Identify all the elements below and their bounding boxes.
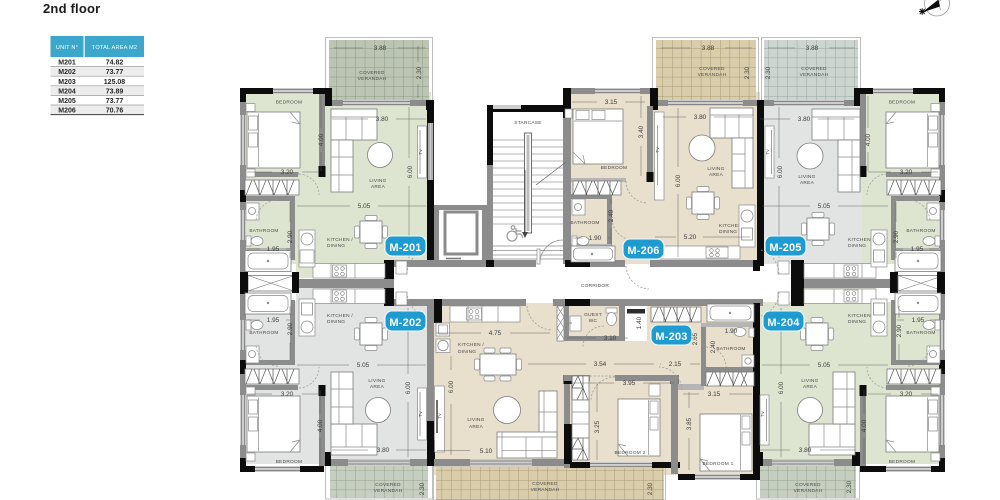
svg-text:Tv: Tv [418,149,424,155]
svg-text:3.80: 3.80 [798,116,811,123]
svg-text:3.15: 3.15 [605,99,618,106]
svg-text:AREA: AREA [709,172,724,178]
svg-text:1.40: 1.40 [636,316,643,329]
svg-text:BATHROOM: BATHROOM [249,228,278,234]
svg-text:3.20: 3.20 [281,391,294,398]
svg-text:M-202: M-202 [389,317,421,329]
svg-text:5.05: 5.05 [358,203,371,210]
svg-text:KITCHEN /: KITCHEN / [848,313,874,319]
svg-text:BEDROOM: BEDROOM [601,165,628,171]
svg-text:5.05: 5.05 [818,203,831,210]
svg-text:BEDROOM: BEDROOM [889,100,916,106]
svg-text:LIVING: LIVING [369,178,386,184]
svg-text:74.82: 74.82 [106,60,124,67]
svg-text:3.25: 3.25 [594,420,601,433]
svg-text:2.30: 2.30 [846,480,853,493]
svg-text:VERANDAH: VERANDAH [794,488,823,494]
svg-text:BEDROOM: BEDROOM [276,100,303,106]
svg-text:LIVING: LIVING [707,166,724,172]
svg-text:125.08: 125.08 [104,79,126,86]
svg-text:3.95: 3.95 [623,380,636,387]
svg-text:BEDROOM 1: BEDROOM 1 [702,461,733,467]
svg-text:M205: M205 [58,98,76,105]
svg-text:M201: M201 [58,60,76,67]
svg-text:3.10: 3.10 [604,335,617,342]
svg-text:DINING: DINING [458,349,476,355]
svg-text:BATHROOM: BATHROOM [249,330,278,336]
svg-text:VERANDAH: VERANDAH [374,488,403,494]
svg-text:M202: M202 [58,69,76,76]
svg-text:AREA: AREA [800,180,815,186]
svg-text:2.90: 2.90 [896,324,903,337]
svg-text:Tv: Tv [437,413,443,419]
svg-text:M204: M204 [58,88,76,95]
svg-text:LIVING: LIVING [467,417,484,423]
svg-text:3.80: 3.80 [694,114,707,121]
svg-text:73.77: 73.77 [106,98,124,105]
svg-text:TOTAL AREA M2: TOTAL AREA M2 [92,45,137,51]
svg-text:6.00: 6.00 [448,380,455,393]
svg-text:VERANDAH: VERANDAH [358,76,387,82]
svg-text:3.54: 3.54 [594,361,607,368]
svg-text:3.88: 3.88 [806,45,819,52]
svg-text:5.05: 5.05 [818,362,831,369]
svg-text:GUEST: GUEST [584,312,602,318]
svg-text:DINING: DINING [848,243,866,249]
svg-text:6.00: 6.00 [405,381,412,394]
svg-text:1.95: 1.95 [911,246,924,253]
svg-text:1.95: 1.95 [267,246,280,253]
svg-text:KITCHEN /: KITCHEN / [458,342,484,348]
svg-text:M-203: M-203 [655,331,687,343]
svg-text:3.15: 3.15 [708,391,721,398]
svg-text:AREA: AREA [803,384,818,390]
svg-text:5.05: 5.05 [357,362,370,369]
svg-text:DINING: DINING [327,319,345,325]
svg-text:73.89: 73.89 [106,88,124,95]
svg-text:DINING: DINING [719,229,737,235]
svg-text:LIVING: LIVING [798,174,815,180]
svg-text:4.00: 4.00 [318,133,325,146]
svg-text:BATHROOM: BATHROOM [570,220,599,226]
svg-text:M-205: M-205 [769,242,801,254]
svg-text:UNIT N°: UNIT N° [56,45,78,51]
svg-text:COVERED: COVERED [699,66,725,72]
svg-text:BEDROOM: BEDROOM [889,459,916,465]
svg-text:4.00: 4.00 [861,419,868,432]
svg-text:BEDROOM: BEDROOM [276,459,303,465]
svg-text:BATHROOM: BATHROOM [906,330,935,336]
svg-text:2.90: 2.90 [287,230,294,243]
svg-text:73.77: 73.77 [106,69,124,76]
svg-text:3.85: 3.85 [686,417,693,430]
svg-text:4.75: 4.75 [489,330,502,337]
svg-text:BATHROOM: BATHROOM [906,228,935,234]
svg-text:3.40: 3.40 [638,125,645,138]
svg-text:6.00: 6.00 [407,165,414,178]
svg-text:KITCHEN /: KITCHEN / [848,237,874,243]
svg-text:1.90: 1.90 [589,235,602,242]
svg-text:3.20: 3.20 [900,391,913,398]
svg-text:KITCHEN /: KITCHEN / [327,313,353,319]
svg-text:3.80: 3.80 [799,447,812,454]
svg-text:M203: M203 [58,79,76,86]
svg-text:COVERED: COVERED [359,70,385,76]
svg-text:VERANDAH: VERANDAH [800,72,829,78]
svg-text:1.90: 1.90 [725,328,738,335]
svg-text:5.10: 5.10 [480,448,493,455]
svg-text:2.30: 2.30 [419,482,426,495]
svg-text:5.20: 5.20 [684,234,697,241]
svg-text:DINING: DINING [327,243,345,249]
svg-text:2.90: 2.90 [287,322,294,335]
svg-text:M206: M206 [58,108,76,115]
svg-text:VERANDAH: VERANDAH [531,487,560,493]
svg-text:WC: WC [589,318,598,324]
svg-text:AREA: AREA [370,384,385,390]
svg-text:STARCASE: STARCASE [514,120,542,126]
svg-text:KITCHEN /: KITCHEN / [327,237,353,243]
svg-text:4.00: 4.00 [865,133,872,146]
svg-text:3.20: 3.20 [900,169,913,176]
svg-text:3.80: 3.80 [377,447,390,454]
svg-text:Tv: Tv [765,149,771,155]
svg-text:6.00: 6.00 [777,165,784,178]
svg-text:6.00: 6.00 [675,174,682,187]
svg-text:COVERED: COVERED [375,482,401,488]
svg-text:70.76: 70.76 [106,108,124,115]
svg-text:3.88: 3.88 [702,45,715,52]
svg-text:1.95: 1.95 [912,317,925,324]
svg-text:M-201: M-201 [389,242,421,254]
svg-text:3.80: 3.80 [376,116,389,123]
svg-text:1.95: 1.95 [267,317,280,324]
svg-text:COVERED: COVERED [801,66,827,72]
svg-text:M-206: M-206 [627,245,659,257]
svg-text:2.30: 2.30 [744,66,751,79]
svg-text:2.90: 2.90 [893,230,900,243]
svg-text:2.30: 2.30 [647,482,654,495]
svg-text:M-204: M-204 [767,317,800,329]
svg-text:6.00: 6.00 [778,381,785,394]
svg-text:LIVING: LIVING [368,378,385,384]
svg-text:DINING: DINING [848,319,866,325]
svg-text:2.30: 2.30 [416,66,423,79]
svg-text:4.00: 4.00 [317,419,324,432]
svg-text:2.15: 2.15 [669,361,682,368]
svg-text:CORRIDOR: CORRIDOR [581,283,609,289]
svg-text:COVERED: COVERED [795,482,821,488]
svg-text:2.65: 2.65 [692,332,699,345]
svg-text:2.30: 2.30 [765,66,772,79]
svg-text:COVERED: COVERED [532,481,558,487]
svg-text:AREA: AREA [371,184,386,190]
svg-text:3.88: 3.88 [374,45,387,52]
svg-text:2.40: 2.40 [608,209,615,222]
svg-text:Tv: Tv [418,411,424,417]
svg-text:LIVING: LIVING [801,378,818,384]
svg-text:2nd floor: 2nd floor [43,1,100,16]
svg-text:3.20: 3.20 [281,169,294,176]
svg-text:BEDROOM 2: BEDROOM 2 [614,450,645,456]
svg-text:Tv: Tv [760,411,766,417]
svg-text:Tv: Tv [655,147,661,153]
svg-text:AREA: AREA [469,424,484,430]
svg-text:2.40: 2.40 [710,340,717,353]
svg-text:VERANDAH: VERANDAH [698,72,727,78]
svg-text:BATHROOM: BATHROOM [716,346,745,352]
